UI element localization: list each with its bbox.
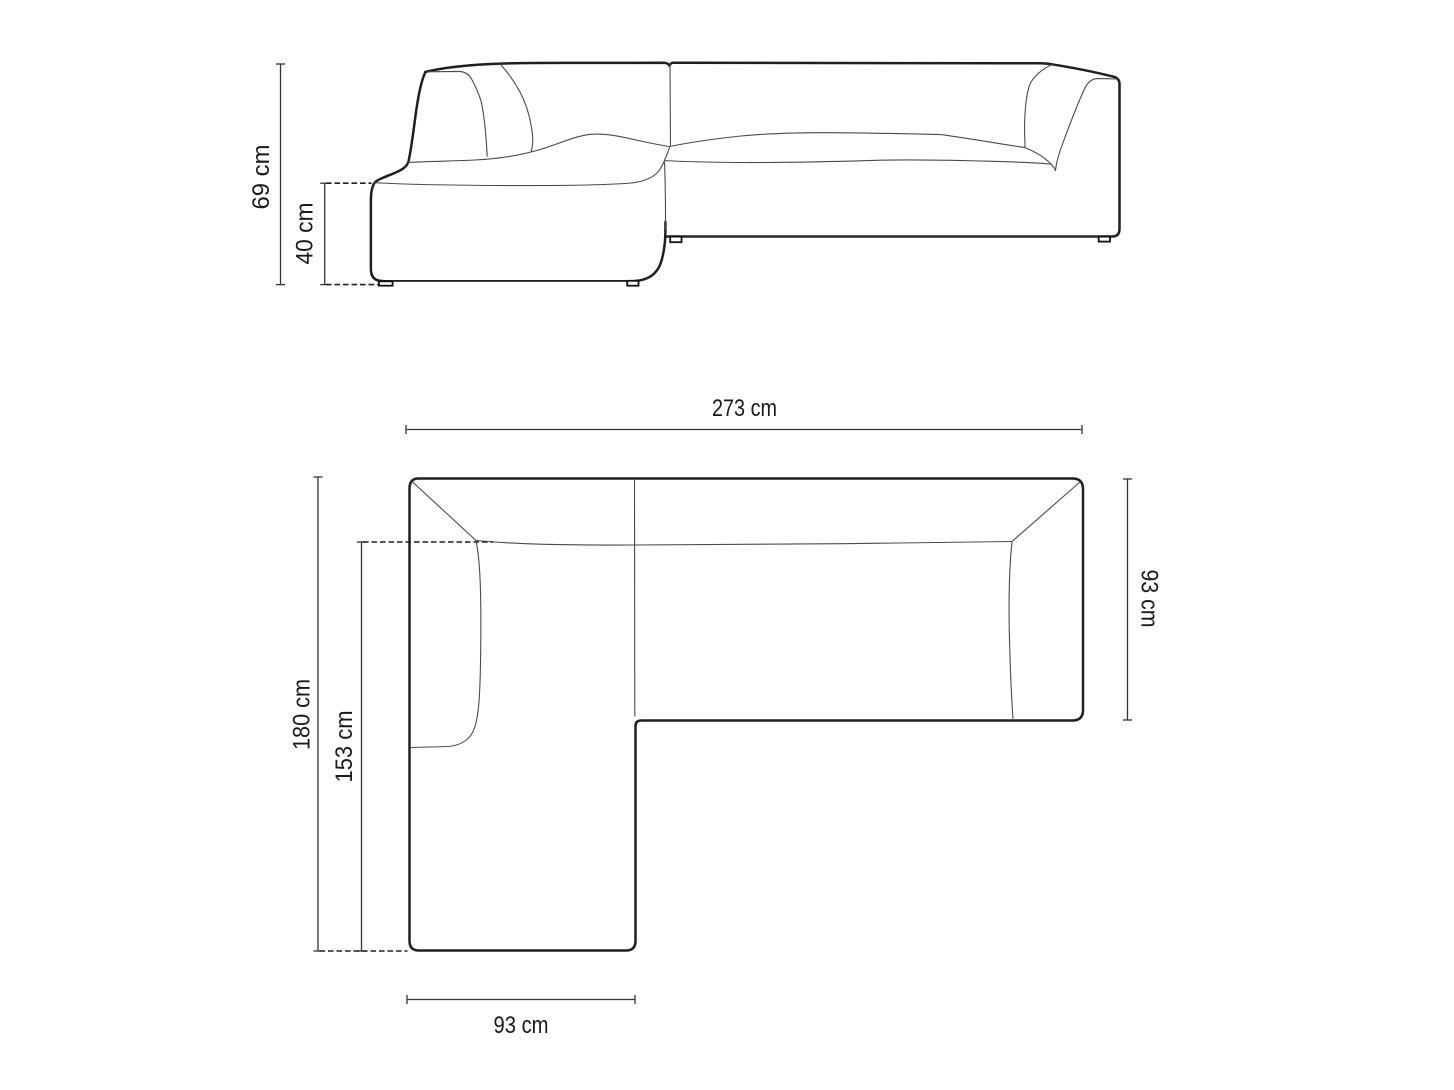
- svg-text:93 cm: 93 cm: [1136, 570, 1163, 628]
- svg-text:153 cm: 153 cm: [331, 711, 358, 783]
- svg-text:93 cm: 93 cm: [494, 1012, 549, 1039]
- svg-text:69 cm: 69 cm: [248, 145, 275, 210]
- svg-text:180 cm: 180 cm: [289, 679, 316, 750]
- svg-text:273 cm: 273 cm: [712, 395, 777, 422]
- svg-text:40 cm: 40 cm: [292, 203, 319, 265]
